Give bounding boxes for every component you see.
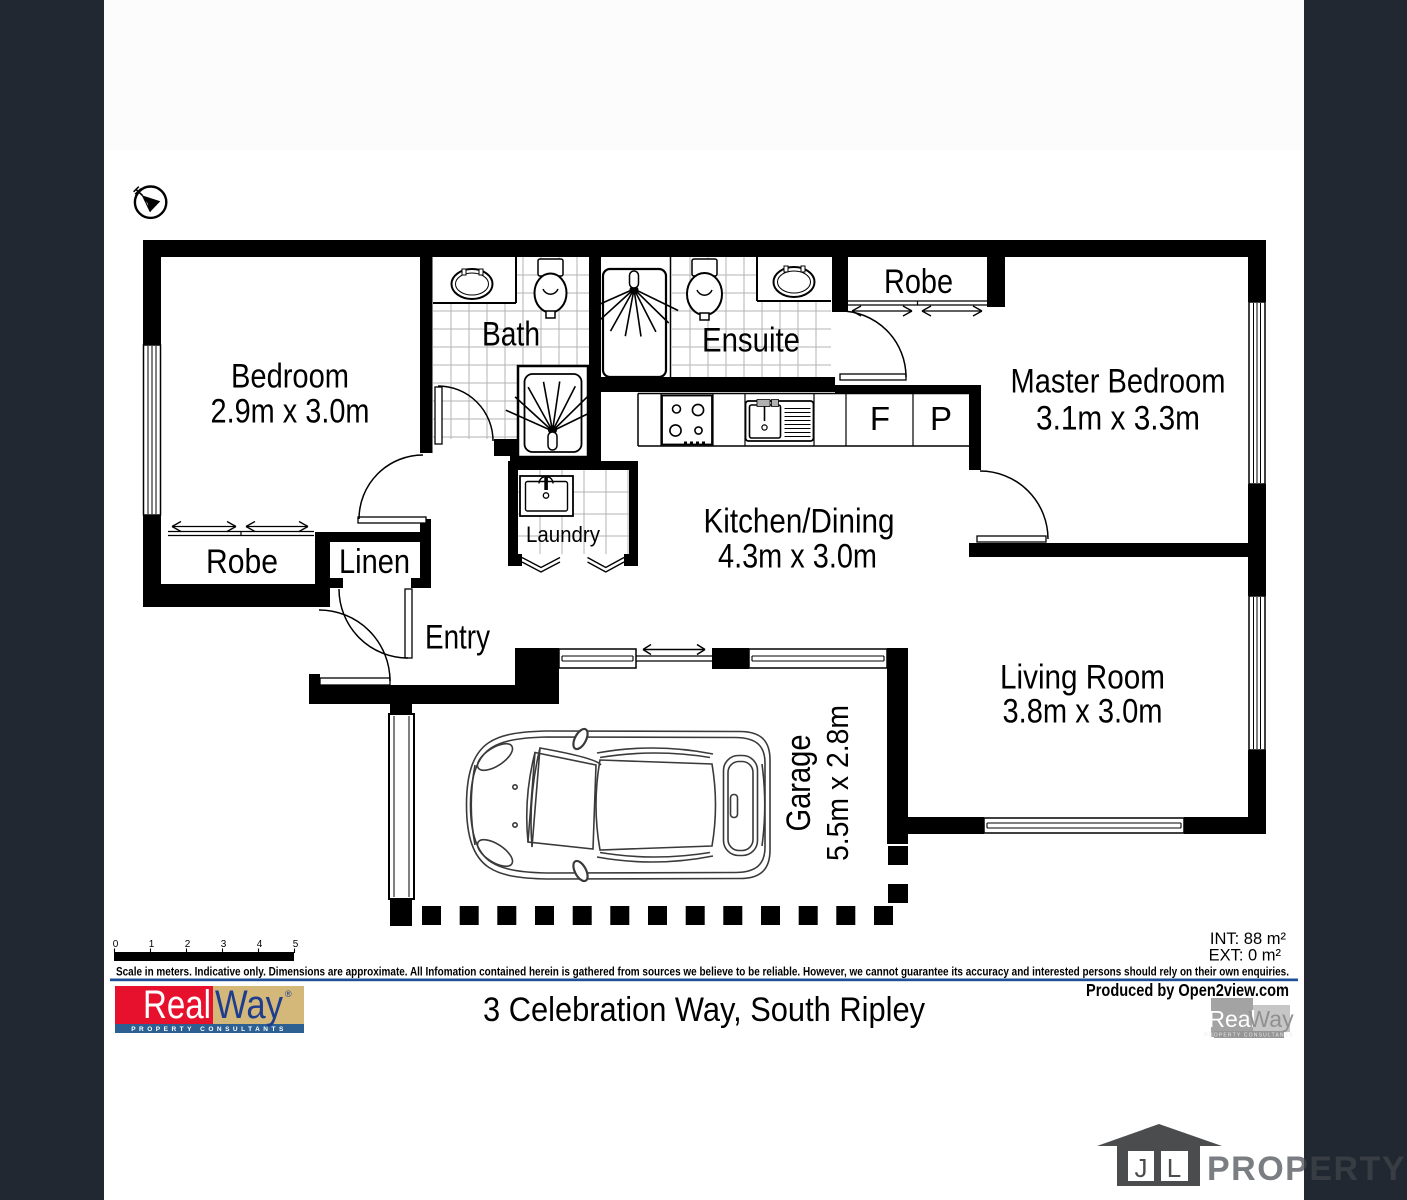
svg-text:Produced by Open2view.com: Produced by Open2view.com [1086, 980, 1289, 1000]
svg-text:PROPERTY CONSULTANTS: PROPERTY CONSULTANTS [1204, 1033, 1293, 1039]
svg-text:Ensuite: Ensuite [702, 322, 800, 360]
svg-text:PROPERTY CONSULTANTS: PROPERTY CONSULTANTS [131, 1026, 287, 1033]
svg-text:3 Celebration Way, South Riple: 3 Celebration Way, South Ripley [483, 991, 925, 1029]
svg-text:2: 2 [185, 939, 191, 950]
svg-text:5: 5 [293, 939, 299, 950]
svg-text:Living Room: Living Room [1000, 659, 1165, 697]
svg-text:1: 1 [149, 939, 155, 950]
svg-text:Robe: Robe [206, 543, 278, 581]
svg-text:F: F [870, 400, 890, 437]
svg-text:®: ® [285, 989, 292, 999]
svg-text:Entry: Entry [425, 619, 490, 657]
svg-text:Scale in meters. Indicative on: Scale in meters. Indicative only. Dimens… [116, 965, 1289, 979]
svg-text:4.3m x 3.0m: 4.3m x 3.0m [718, 538, 877, 576]
svg-text:P: P [930, 400, 952, 437]
svg-text:0: 0 [113, 939, 119, 950]
svg-text:Robe: Robe [884, 263, 953, 301]
svg-text:Garage: Garage [780, 735, 818, 832]
svg-text:3.1m x 3.3m: 3.1m x 3.3m [1036, 400, 1200, 438]
svg-text:4: 4 [257, 939, 263, 950]
svg-text:Real: Real [143, 983, 211, 1027]
svg-text:Way: Way [1248, 1006, 1294, 1032]
svg-text:PROPERTY: PROPERTY [1207, 1150, 1406, 1188]
svg-text:L: L [1167, 1153, 1181, 1183]
svg-text:Bath: Bath [482, 316, 540, 354]
svg-text:INT: 88 m²: INT: 88 m² [1210, 930, 1287, 948]
svg-text:Master Bedroom: Master Bedroom [1011, 363, 1226, 401]
svg-text:Laundry: Laundry [526, 522, 600, 547]
svg-text:Way: Way [215, 983, 283, 1027]
svg-text:5.5m x 2.8m: 5.5m x 2.8m [820, 705, 855, 861]
svg-text:2.9m x 3.0m: 2.9m x 3.0m [211, 393, 370, 431]
svg-text:J: J [1135, 1153, 1148, 1183]
svg-text:3.8m x 3.0m: 3.8m x 3.0m [1003, 693, 1163, 731]
svg-text:3: 3 [221, 939, 227, 950]
svg-text:EXT: 0 m²: EXT: 0 m² [1209, 947, 1282, 965]
svg-text:Linen: Linen [339, 543, 410, 581]
svg-text:Bedroom: Bedroom [231, 358, 349, 396]
svg-text:Kitchen/Dining: Kitchen/Dining [704, 503, 895, 541]
